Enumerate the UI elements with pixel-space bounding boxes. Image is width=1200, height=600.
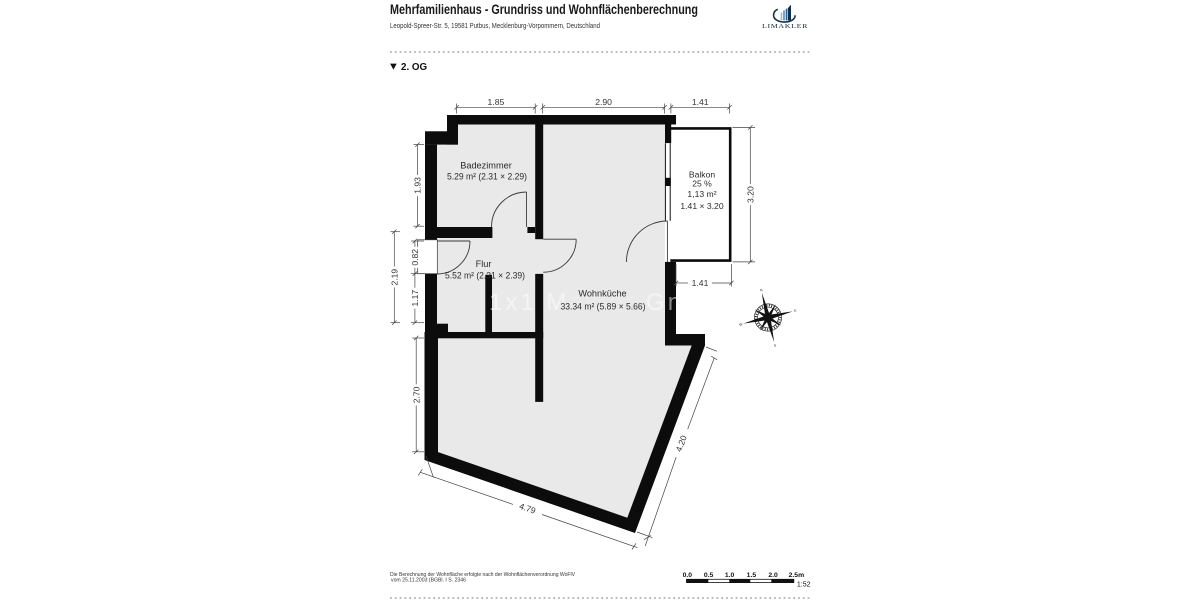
svg-text:Flur: Flur: [476, 259, 492, 269]
svg-text:1.41 × 3.20: 1.41 × 3.20: [680, 201, 723, 211]
svg-text:5.52 m² (2.31 × 2.39): 5.52 m² (2.31 × 2.39): [445, 271, 525, 281]
svg-text:2.70: 2.70: [412, 386, 422, 403]
svg-text:2.0: 2.0: [768, 572, 778, 579]
svg-text:2.5m: 2.5m: [789, 572, 805, 579]
svg-text:1.85: 1.85: [488, 97, 505, 107]
svg-text:25 %: 25 %: [692, 178, 712, 188]
svg-text:1.41: 1.41: [692, 97, 709, 107]
svg-text:2.90: 2.90: [595, 97, 612, 107]
svg-text:1.0: 1.0: [725, 572, 735, 579]
svg-text:LIMAKLER: LIMAKLER: [762, 23, 808, 30]
svg-text:vom 25.11.2003 (BGBl. I S. 234: vom 25.11.2003 (BGBl. I S. 2346: [391, 577, 466, 583]
svg-text:2. OG: 2. OG: [401, 62, 428, 73]
svg-text:5.29 m² (2.31 × 2.29): 5.29 m² (2.31 × 2.29): [447, 172, 527, 182]
svg-text:33.34 m² (5.89 × 5.66): 33.34 m² (5.89 × 5.66): [561, 302, 646, 312]
svg-text:Mehrfamilienhaus - Grundriss u: Mehrfamilienhaus - Grundriss und Wohnflä…: [390, 2, 698, 17]
svg-text:0.5: 0.5: [704, 572, 714, 579]
svg-text:Leopold-Spreer-Str. 5, 19581 P: Leopold-Spreer-Str. 5, 19581 Putbus, Mec…: [390, 21, 600, 30]
svg-text:Wohnküche: Wohnküche: [578, 289, 626, 299]
svg-text:2.19: 2.19: [390, 269, 400, 286]
svg-text:1:52: 1:52: [797, 581, 811, 588]
svg-text:1,13 m²: 1,13 m²: [687, 189, 716, 199]
svg-text:1.41: 1.41: [692, 278, 709, 288]
svg-text:0.0: 0.0: [683, 572, 693, 579]
svg-text:1.5: 1.5: [747, 572, 757, 579]
svg-text:1.93: 1.93: [413, 177, 423, 194]
svg-text:1.17: 1.17: [410, 290, 420, 307]
svg-text:Badezimmer: Badezimmer: [460, 161, 512, 171]
svg-text:3.20: 3.20: [746, 186, 756, 203]
svg-text:0.82: 0.82: [410, 249, 420, 266]
